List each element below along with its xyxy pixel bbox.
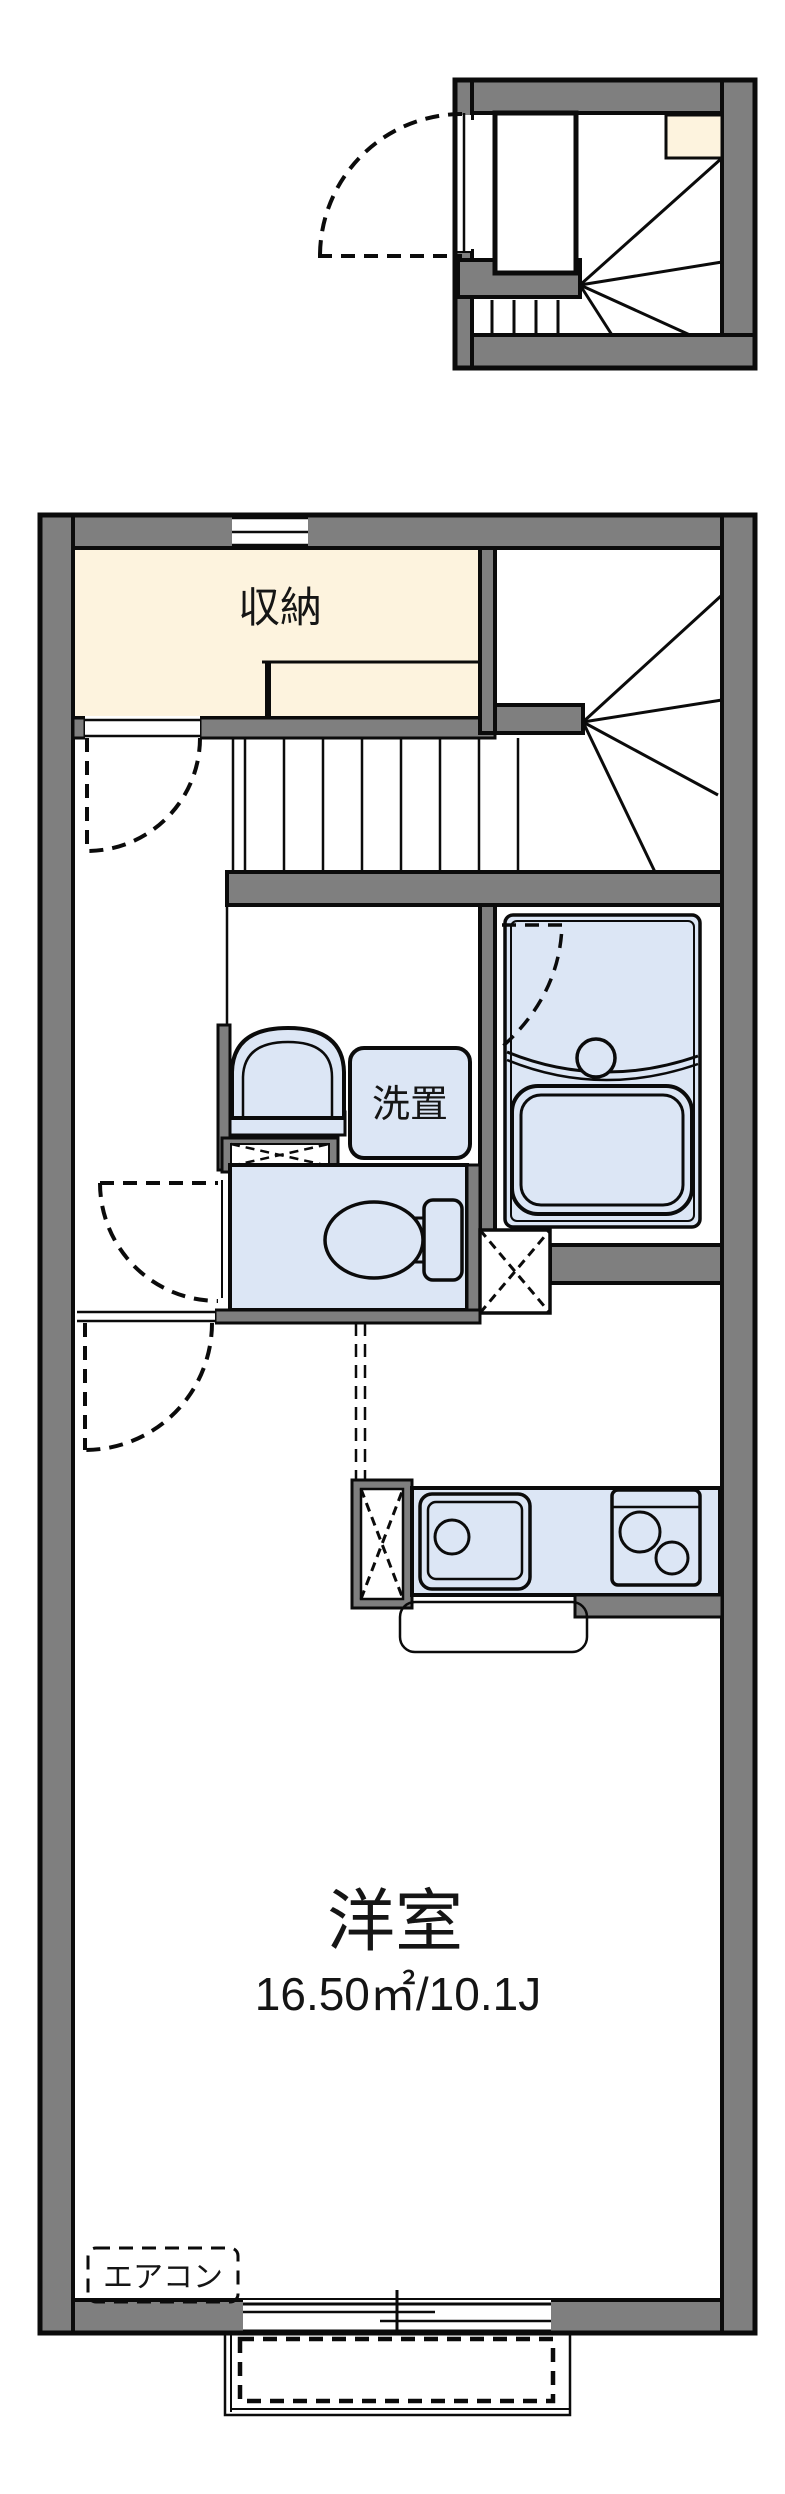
laundry-label: 洗置: [372, 1084, 448, 1126]
counter-front: [400, 1602, 587, 1652]
wall: [722, 80, 755, 368]
stairwell-left-wall: [480, 548, 495, 733]
main-floor-outline: [40, 515, 755, 2333]
laundry-space: 洗置: [350, 1048, 470, 1158]
stair-treads: [492, 300, 558, 335]
bath-faucet: [577, 1039, 615, 1077]
washbasin: [230, 1028, 345, 1135]
toilet-right-wall: [467, 1165, 480, 1313]
stair-treads: [245, 738, 518, 872]
main-room: 洋室 16.50㎡/10.1J エアコン: [88, 1884, 541, 2302]
toilet-door-swing: [100, 1183, 218, 1301]
aircon-label: エアコン: [103, 2261, 223, 2294]
wall: [200, 718, 495, 738]
toilet-room: [100, 1165, 480, 1313]
wall: [455, 80, 755, 113]
kitchen: [352, 1480, 722, 1652]
main-room-label: 洋室: [327, 1884, 463, 1960]
storage-label: 収納: [238, 584, 322, 631]
wall-right: [722, 515, 755, 2333]
stair-landing: [666, 115, 722, 158]
main-floor-walls: [40, 515, 755, 2333]
pipe-space: [480, 1230, 550, 1313]
main-room-area: 16.50㎡/10.1J: [255, 1968, 541, 2020]
stove: [612, 1490, 700, 1585]
wall: [455, 335, 755, 368]
toilet-bowl: [325, 1202, 423, 1278]
stairwell: [480, 548, 722, 872]
bathtub: [512, 1086, 692, 1214]
bathroom-left-wall: [480, 905, 495, 1245]
kitchen-sink: [420, 1494, 530, 1589]
kitchen-pipe-space: [352, 1480, 412, 1608]
stair-corridor: [233, 738, 518, 872]
door-swing-arc: [85, 1323, 212, 1450]
wall-left: [40, 515, 73, 2333]
entrance-door-swing-arc: [320, 114, 462, 256]
wall-stub: [575, 1595, 722, 1617]
stair-newel-wall: [495, 705, 583, 733]
wall-band: [550, 1245, 722, 1283]
bathroom: [480, 905, 722, 1283]
porch: [225, 2333, 570, 2415]
entrance-stair-section: [318, 80, 755, 368]
open-partition: [356, 1323, 365, 1480]
stair-upper-flight: [495, 113, 576, 273]
storage-floor: [73, 548, 480, 718]
wall: [73, 718, 85, 738]
winder-steps: [580, 158, 722, 335]
wall-top: [40, 515, 755, 548]
floor-plan-svg: 収納: [0, 0, 785, 2494]
door-swing-arc: [87, 738, 200, 851]
washroom: 洗置: [218, 905, 470, 1172]
wall-band: [215, 1310, 480, 1323]
hall-room-door: [77, 1308, 480, 1450]
top-window: [232, 515, 308, 548]
storage-room: 収納: [73, 548, 480, 718]
aircon: エアコン: [88, 2248, 238, 2302]
floor-plan: 収納: [0, 0, 785, 2494]
toilet-tank: [424, 1200, 462, 1280]
wall-band: [227, 872, 722, 905]
winder-steps: [583, 595, 722, 872]
